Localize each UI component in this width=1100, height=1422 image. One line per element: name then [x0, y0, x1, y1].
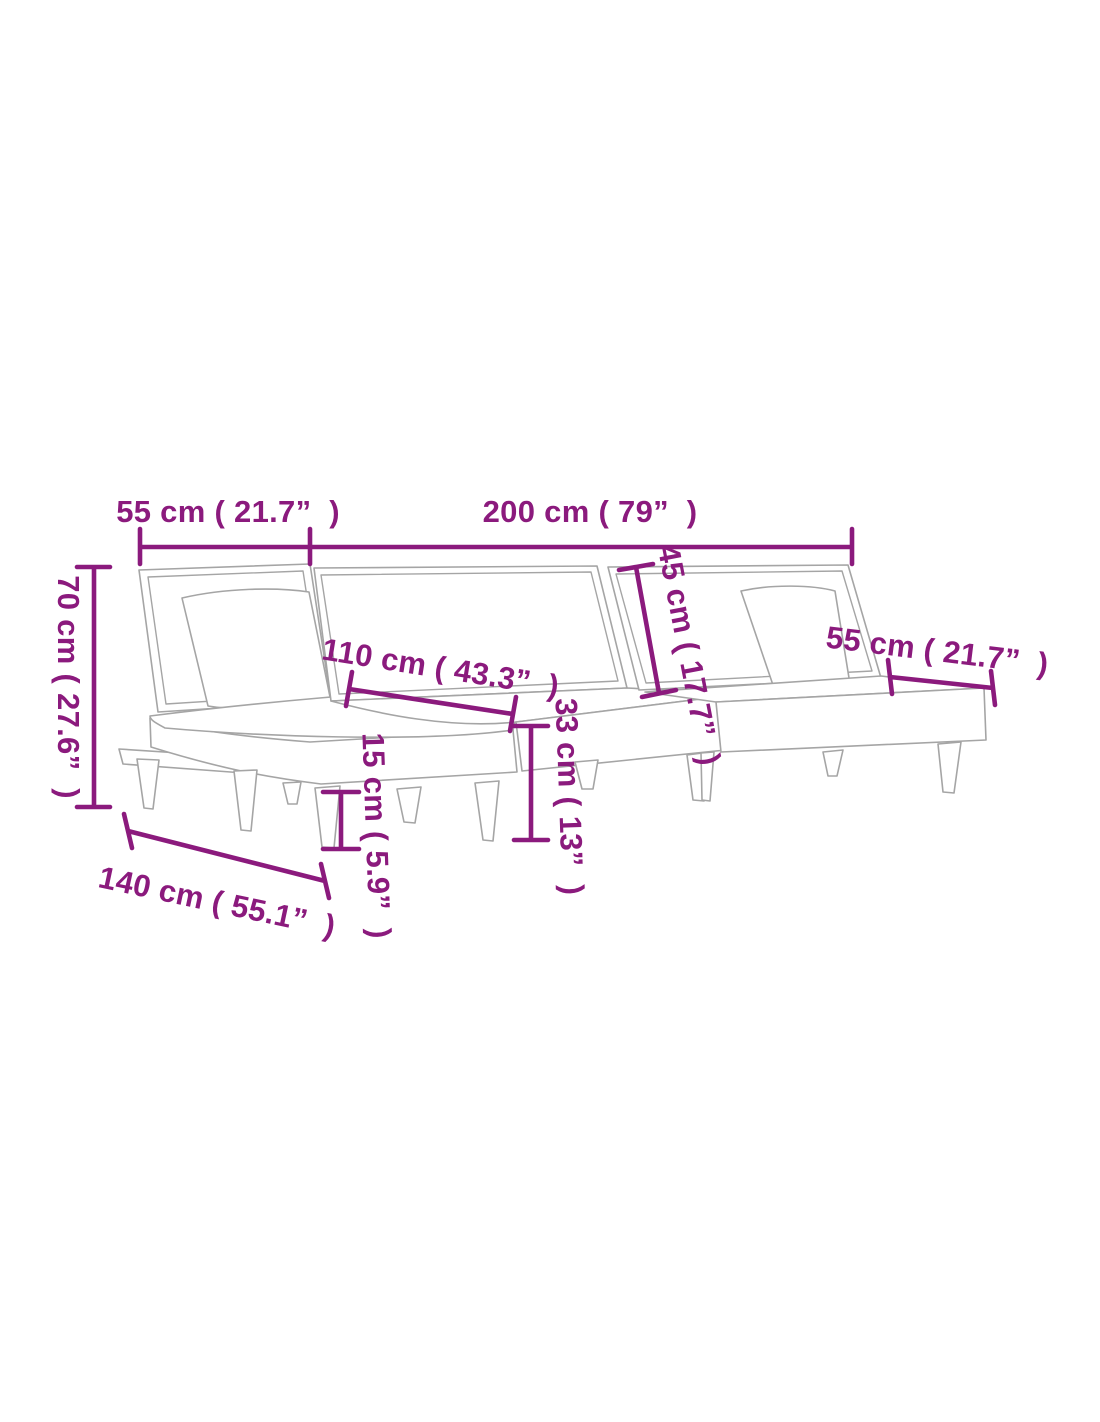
- page: { "page": { "background_color": "#ffffff…: [0, 0, 1100, 1422]
- chaise-leg-5: [397, 787, 421, 823]
- chaise-leg-3: [283, 782, 301, 804]
- chaise-leg-4: [315, 786, 340, 848]
- dim-label-leg-height: 15 cm ( 5.9” ): [355, 732, 397, 939]
- dim-line-backrest-left-width: [140, 529, 852, 564]
- dim-label-chaise-length: 140 cm ( 55.1” ): [96, 860, 339, 944]
- dim-label-total-height: 70 cm ( 27.6” ): [51, 575, 86, 799]
- dimension-diagram: 55 cm ( 21.7” ) 200 cm ( 79” ) 70 cm ( 2…: [0, 0, 1100, 1422]
- sofa-dimension-svg: 55 cm ( 21.7” ) 200 cm ( 79” ) 70 cm ( 2…: [0, 0, 1100, 1422]
- dim-label-sofa-length: 200 cm ( 79” ): [483, 494, 698, 529]
- right-leg-2: [823, 750, 843, 776]
- dim-label-backrest-left-width: 55 cm ( 21.7” ): [116, 494, 340, 529]
- chaise-leg-2: [234, 770, 257, 831]
- right-leg-3: [938, 742, 961, 793]
- left-pillow: [182, 589, 330, 708]
- chaise-leg-1: [137, 759, 159, 809]
- dim-label-seat-height: 33 cm ( 13” ): [549, 697, 591, 895]
- chaise-leg-6: [475, 781, 499, 841]
